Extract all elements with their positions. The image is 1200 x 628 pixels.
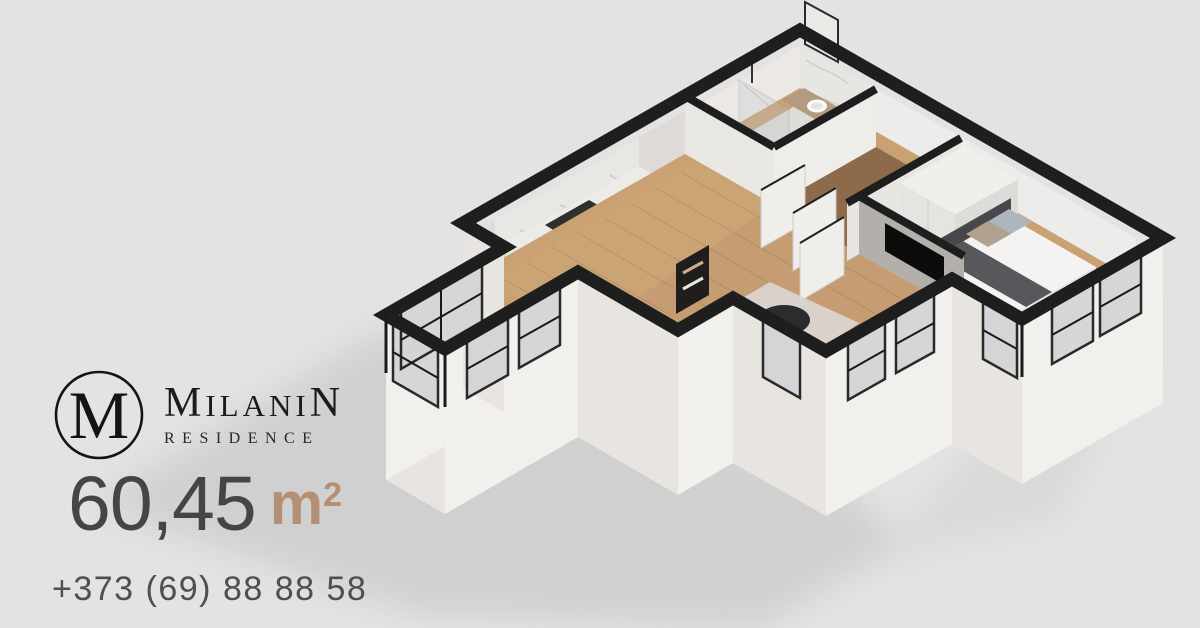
sink-basin — [811, 103, 823, 110]
ad-banner: M MILANIN RESIDENCE 60,45 m2 +373 (69) 8… — [0, 0, 1200, 628]
phone-number: +373 (69) 88 88 58 — [52, 570, 367, 609]
brand-text: MILANIN RESIDENCE — [164, 382, 344, 448]
brand-name: MILANIN — [164, 382, 344, 424]
brand-lockup: M MILANIN RESIDENCE — [52, 368, 344, 462]
monogram-letter: M — [69, 377, 129, 453]
brand-name-middle: ILANI — [205, 388, 309, 423]
area-unit: m2 — [270, 474, 342, 534]
area-unit-letter: m — [270, 470, 323, 537]
brand-monogram-icon: M — [52, 368, 146, 462]
area-value: 60,45 — [68, 466, 256, 543]
area-unit-exponent: 2 — [323, 476, 342, 514]
area-figure: 60,45 m2 — [68, 466, 342, 543]
brand-subtitle: RESIDENCE — [164, 430, 344, 448]
brand-name-last: N — [310, 380, 344, 426]
brand-name-first: M — [164, 380, 205, 426]
